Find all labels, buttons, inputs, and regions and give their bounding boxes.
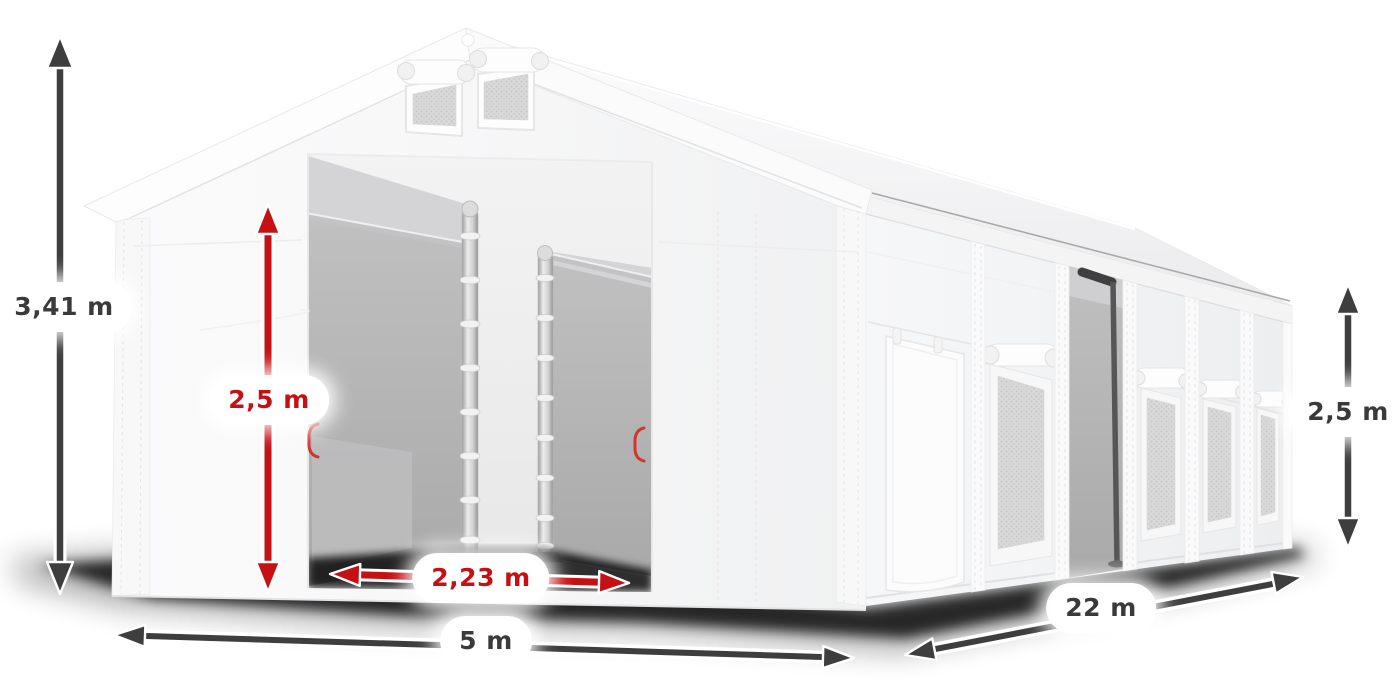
tent-illustration [0, 0, 1400, 700]
front-opening-interior [306, 152, 652, 592]
dimension-label-width: 5 m [445, 621, 527, 661]
dimension-label-length: 22 m [1051, 588, 1151, 628]
roof-vent [398, 60, 475, 136]
tent-dimension-figure: 3,41 m 2,5 m 2,23 m 5 m 22 m 2,5 m [0, 0, 1400, 700]
dimension-label-side-height: 2,5 m [1293, 392, 1400, 432]
side-open-doorway [1069, 266, 1126, 578]
side-wall [866, 196, 1294, 606]
panel-strap [934, 337, 942, 353]
dimension-label-total-height: 3,41 m [0, 287, 127, 327]
panel-strap [893, 328, 901, 344]
side-door-panel [886, 328, 964, 592]
dimension-label-entrance-height: 2,5 m [214, 380, 324, 420]
dimension-label-entrance-width: 2,23 m [417, 558, 544, 598]
